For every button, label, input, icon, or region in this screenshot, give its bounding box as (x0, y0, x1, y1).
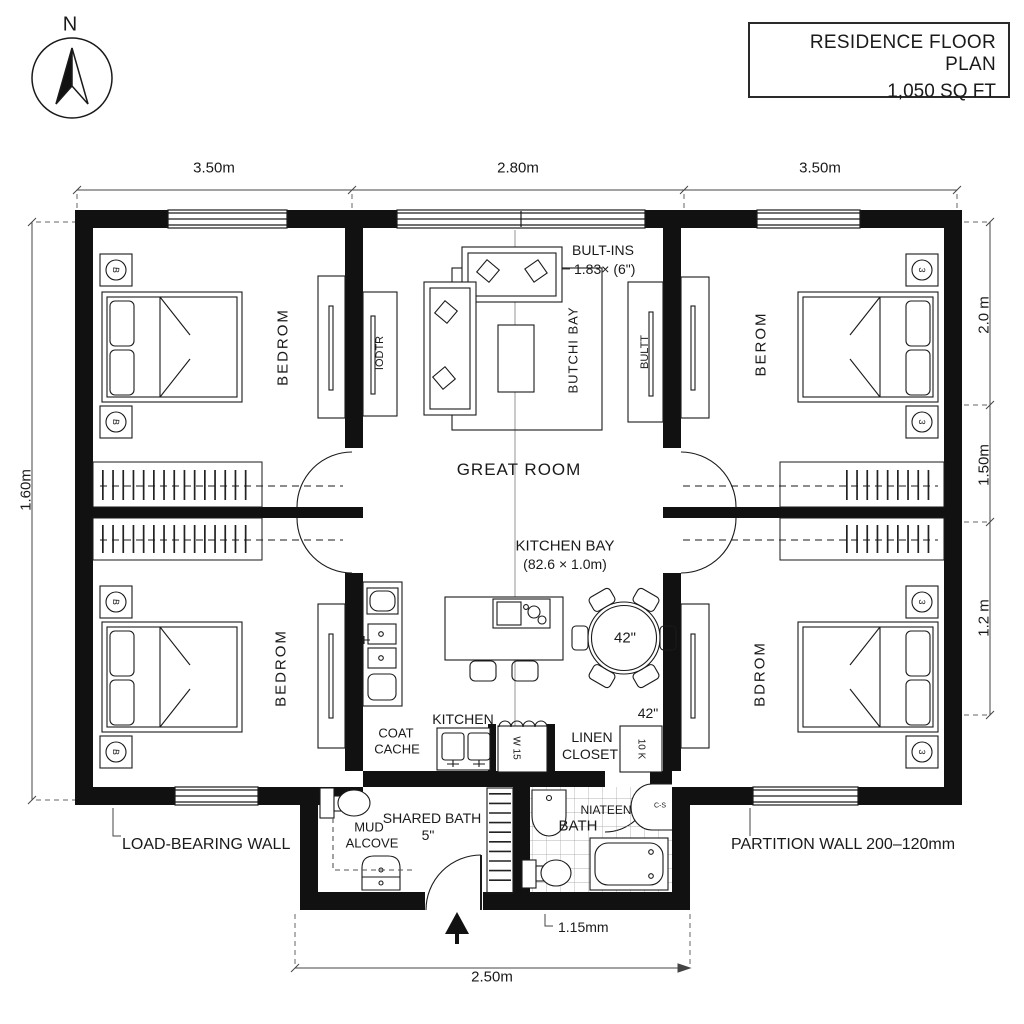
plan-title: RESIDENCE FLOOR PLAN (760, 32, 996, 76)
nightstand-symbol: 3 (917, 599, 927, 605)
dim-right-3: 1.2 m (976, 599, 993, 637)
nightstand-symbol: B (111, 267, 121, 274)
room-label-mud-1: MUD (354, 820, 384, 835)
nightstand-symbol: 3 (917, 267, 927, 273)
room-size-shared-bath: 5" (422, 827, 435, 843)
legend-partition-wall: PARTITION WALL 200–120mm (731, 836, 955, 854)
north-label: N (63, 14, 77, 37)
nightstand-symbol: B (111, 599, 121, 606)
hall-closet-size: 42" (638, 705, 659, 721)
room-label-bedroom-tr: BEROM (753, 311, 770, 376)
main-bath-fixtures (522, 784, 672, 892)
room-label-kitchen: KITCHEN (432, 711, 493, 727)
floor-plan-drawing (0, 0, 1024, 1024)
nightstand-symbol: 3 (917, 419, 927, 425)
room-label-shared-bath: SHARED BATH (383, 810, 482, 826)
dining-table-size: 42" (614, 630, 636, 647)
room-label-great-room: GREAT ROOM (457, 460, 582, 480)
room-label-coat-1: COAT (378, 726, 413, 741)
room-label-linen-2: CLOSET (562, 746, 618, 762)
dim-top-center: 2.80m (497, 160, 539, 177)
room-label-bath: BATH (559, 818, 598, 835)
dim-right-1: 2.0 m (976, 296, 993, 334)
cabinet-label-left: IODTR (374, 336, 386, 370)
annotation-built-ins-size: 1.83× (6") (574, 261, 635, 277)
nightstand-symbol: B (111, 419, 121, 426)
dim-top-right: 3.50m (799, 160, 841, 177)
dim-top-left: 3.50m (193, 160, 235, 177)
room-size-kitchen-bay: (82.6 × 1.0m) (523, 556, 607, 572)
dim-entry-offset: 1.15mm (558, 919, 609, 935)
north-arrow-icon (32, 38, 112, 118)
room-label-bedroom-bl: BEDROM (273, 629, 290, 707)
cabinet-label-w15: W 15 (511, 736, 522, 759)
room-label-bedroom-tl: BEDROM (275, 308, 292, 386)
title-block: RESIDENCE FLOOR PLAN 1,050 SQ FT (748, 22, 1010, 98)
nightstand-symbol: B (111, 749, 121, 756)
nightstand-symbol: 3 (917, 749, 927, 755)
room-label-mud-2: ALCOVE (346, 836, 399, 851)
cabinet-label-right: BULTT (639, 335, 651, 369)
dim-right-2: 1.50m (976, 444, 993, 486)
dim-bottom: 2.50m (471, 969, 513, 986)
entry-arrow-icon (445, 912, 469, 944)
room-label-coat-2: CACHE (374, 742, 420, 757)
cabinet-label-10k: 10 K (636, 739, 647, 760)
bath-sink-tag: C-S (654, 803, 666, 810)
floor-plan-canvas: N RESIDENCE FLOOR PLAN 1,050 SQ FT 3.50m… (0, 0, 1024, 1024)
plan-area: 1,050 SQ FT (760, 81, 996, 103)
dim-left: 1.60m (18, 469, 35, 511)
cabinet-label-butchi-bay: BUTCHI BAY (566, 306, 581, 393)
room-label-kitchen-bay: KITCHEN BAY (516, 538, 615, 555)
room-label-linen-1: LINEN (571, 729, 612, 745)
annotation-built-ins: BULT-INS (572, 242, 634, 258)
room-label-bath-prefix: NIATEEN (580, 803, 631, 817)
legend-load-bearing-wall: LOAD-BEARING WALL (122, 836, 290, 854)
room-label-bedroom-br: BDROM (752, 641, 769, 707)
